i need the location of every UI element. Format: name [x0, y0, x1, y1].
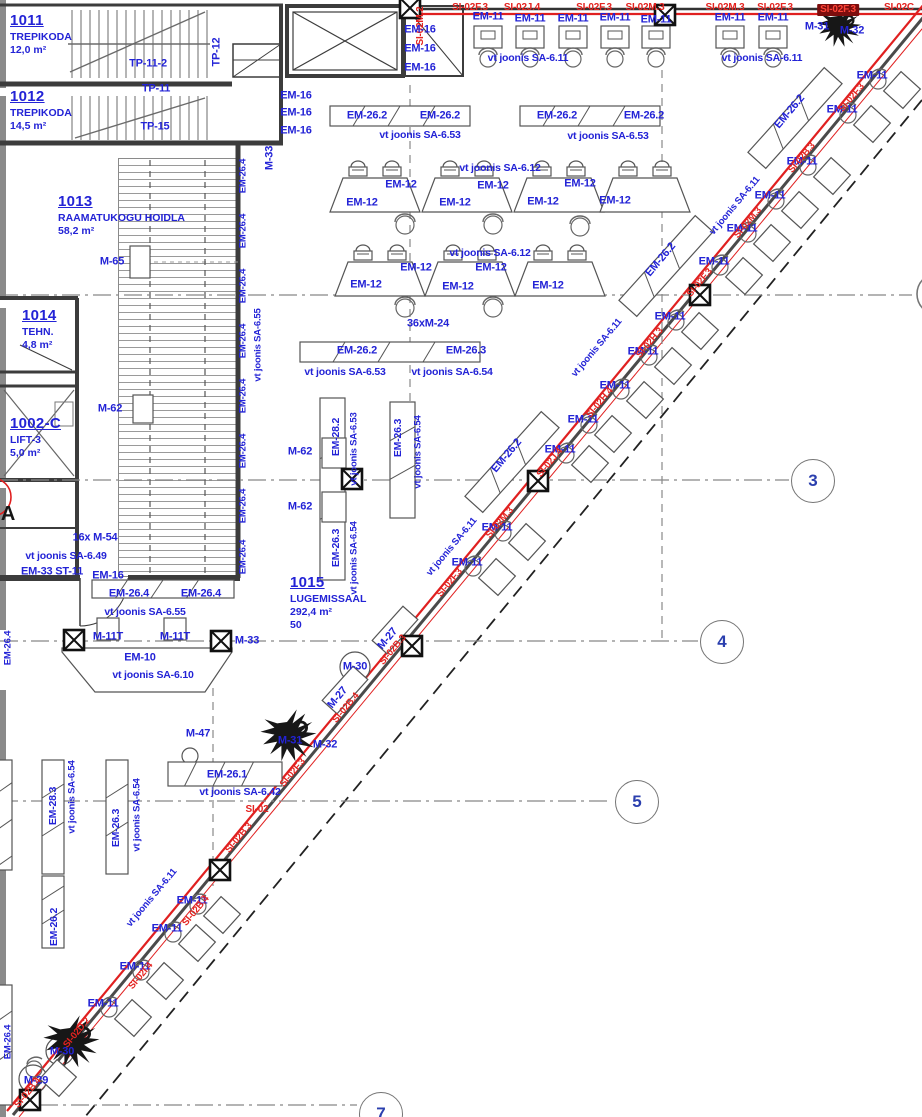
shelf-strip — [42, 760, 64, 874]
desk — [559, 26, 587, 48]
top-wall-and-red-lines — [7, 0, 922, 1117]
plan-linework — [0, 0, 922, 1117]
shelf-strip — [390, 402, 415, 518]
stair-treads — [68, 10, 210, 140]
room-1014-lift-walls — [0, 262, 238, 578]
table-em12 — [425, 262, 515, 296]
chair-icon — [484, 299, 502, 317]
desk — [516, 26, 544, 48]
workstation-top-icon — [354, 245, 372, 260]
table-em12 — [422, 178, 512, 212]
shelf-unit — [92, 580, 234, 598]
dashed-section-diagonal — [85, 100, 922, 1117]
desk-rotated — [572, 446, 609, 483]
shelf-strip — [0, 985, 12, 1105]
workstation-top-icon — [441, 161, 459, 176]
desk — [759, 26, 787, 48]
workstation-top-icon — [533, 161, 551, 176]
shelf-unit — [168, 762, 282, 786]
workstation-top-icon — [475, 161, 493, 176]
shelf-unit — [520, 106, 660, 126]
chair-back-icon — [483, 214, 503, 222]
chair-icon — [522, 51, 538, 67]
desk-rotated — [627, 382, 664, 419]
desk-rotated — [726, 258, 763, 295]
stack-guides — [150, 160, 205, 574]
desk-rotated — [884, 72, 921, 109]
chair-back-icon — [570, 216, 590, 224]
table-em12 — [600, 178, 690, 212]
desk-rotated — [595, 416, 632, 453]
desk-rotated — [147, 963, 184, 1000]
chair-icon — [765, 51, 781, 67]
workstation-top-icon — [383, 161, 401, 176]
desk-rotated — [754, 225, 791, 262]
desk — [716, 26, 744, 48]
grid-bubble-edge — [917, 273, 922, 315]
cabinet-box — [130, 246, 150, 278]
chair-icon — [190, 898, 206, 914]
workstation-top-icon — [444, 245, 462, 260]
chair-icon — [26, 1061, 42, 1077]
cabinet-box — [97, 618, 119, 640]
workstation-top-icon — [349, 161, 367, 176]
desk-rotated — [655, 348, 692, 385]
chair-icon — [648, 51, 664, 67]
shelf-unit — [300, 342, 480, 362]
workstation-top-icon — [388, 245, 406, 260]
cabinet-box — [133, 395, 153, 423]
cabinet-box — [322, 438, 346, 468]
stair-block-walls — [0, 4, 283, 626]
workstation-top-icon — [567, 161, 585, 176]
desk-rotated — [814, 158, 851, 195]
table-em12 — [515, 262, 605, 296]
desk-rotated — [509, 524, 546, 561]
chair-back-icon — [395, 214, 415, 222]
counter-em10 — [62, 648, 232, 692]
desk-rotated — [179, 925, 216, 962]
chair-icon — [607, 51, 623, 67]
table-em12 — [330, 178, 420, 212]
shelf-strip — [0, 760, 12, 870]
chair-icon — [396, 216, 414, 234]
chair-icon — [165, 926, 181, 942]
chair-icon — [480, 51, 496, 67]
desk-rotated — [854, 106, 891, 143]
workstation-top-icon — [568, 245, 586, 260]
table-em12 — [514, 178, 604, 212]
table-em12 — [335, 262, 425, 296]
chair-back-icon — [483, 297, 503, 305]
cabinet-box — [164, 618, 186, 640]
desk-rotated — [782, 192, 819, 229]
chair-icon — [396, 299, 414, 317]
desk — [601, 26, 629, 48]
chair-back-icon — [395, 297, 415, 305]
furniture-layer — [0, 0, 920, 1110]
workstation-top-icon — [534, 245, 552, 260]
workstation-top-icon — [478, 245, 496, 260]
desk-rotated — [115, 1000, 152, 1037]
chair-icon — [722, 51, 738, 67]
cabinet-box — [322, 492, 346, 522]
desk-rotated — [204, 897, 241, 934]
shelf-strip — [106, 760, 128, 874]
m27-shelves — [322, 606, 418, 714]
desk — [474, 26, 502, 48]
chair-icon — [484, 216, 502, 234]
chair-icon — [133, 964, 149, 980]
desk — [642, 26, 670, 48]
chair-icon — [571, 218, 589, 236]
desk-rotated — [682, 313, 719, 350]
workstation-top-icon — [653, 161, 671, 176]
shelf-unit — [330, 106, 470, 126]
desk-rotated — [479, 559, 516, 596]
elevator-shaft — [233, 6, 463, 77]
workstation-top-icon — [619, 161, 637, 176]
shelf-unit-rotated — [748, 68, 842, 169]
chair-icon — [565, 51, 581, 67]
left-outer-wall — [0, 0, 6, 1117]
floor-plan-canvas: SI-02F.3SI-02J.4SI-02F.3SI-02M.3SI-02M.3… — [0, 0, 922, 1117]
